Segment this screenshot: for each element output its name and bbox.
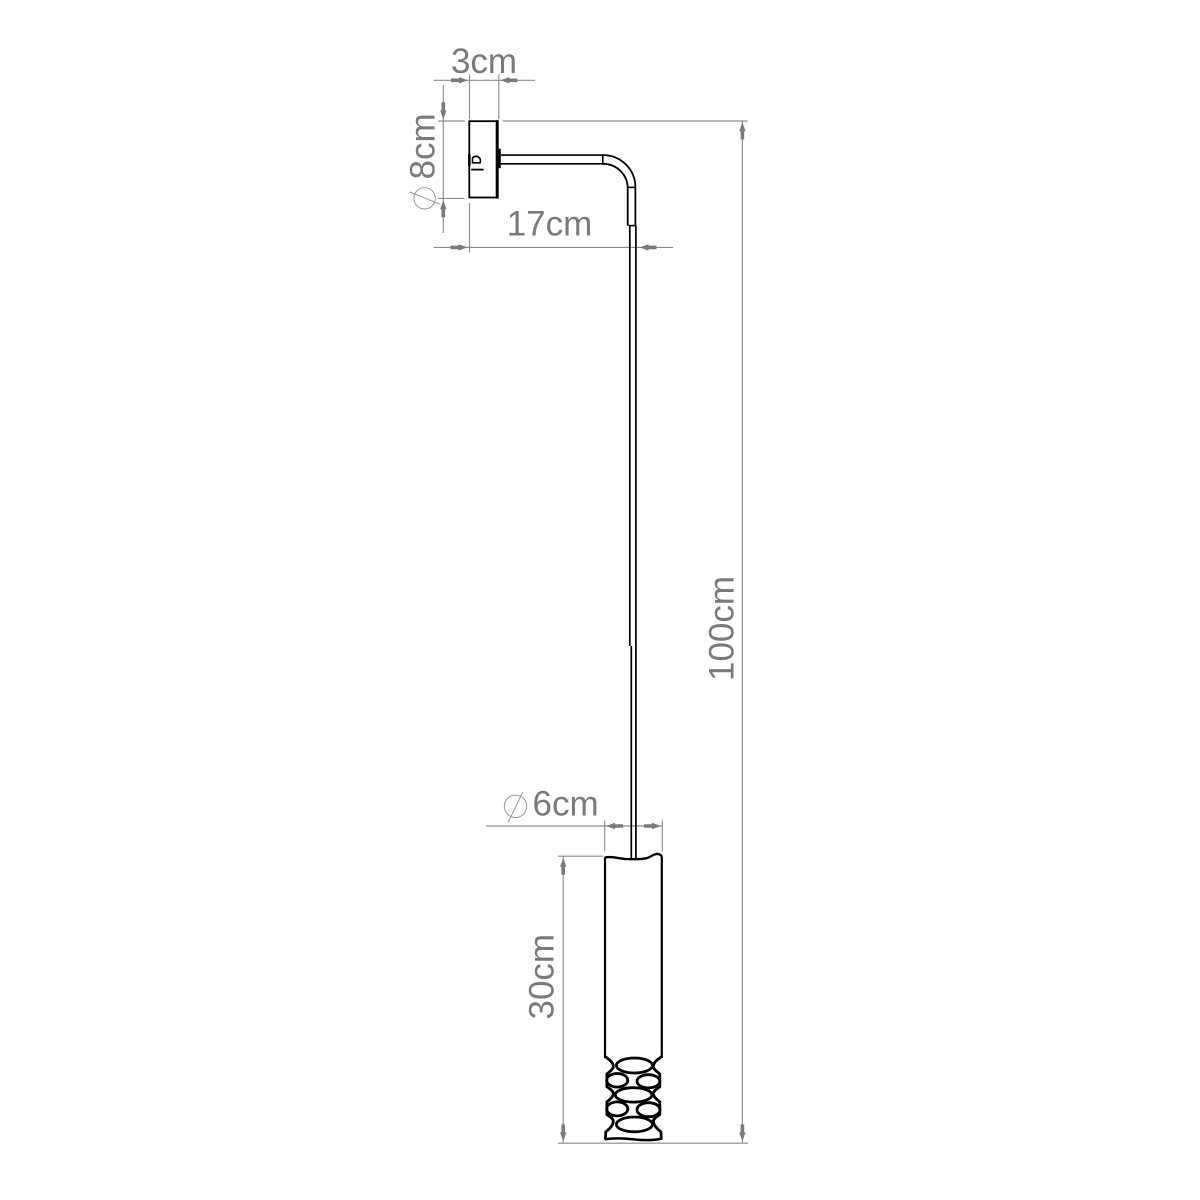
svg-text:17cm: 17cm: [507, 205, 593, 244]
svg-text:30cm: 30cm: [523, 934, 562, 1020]
svg-text:100cm: 100cm: [703, 576, 742, 681]
svg-text:6cm: 6cm: [533, 785, 599, 824]
svg-text:8cm: 8cm: [404, 113, 443, 179]
svg-text:3cm: 3cm: [451, 42, 517, 81]
